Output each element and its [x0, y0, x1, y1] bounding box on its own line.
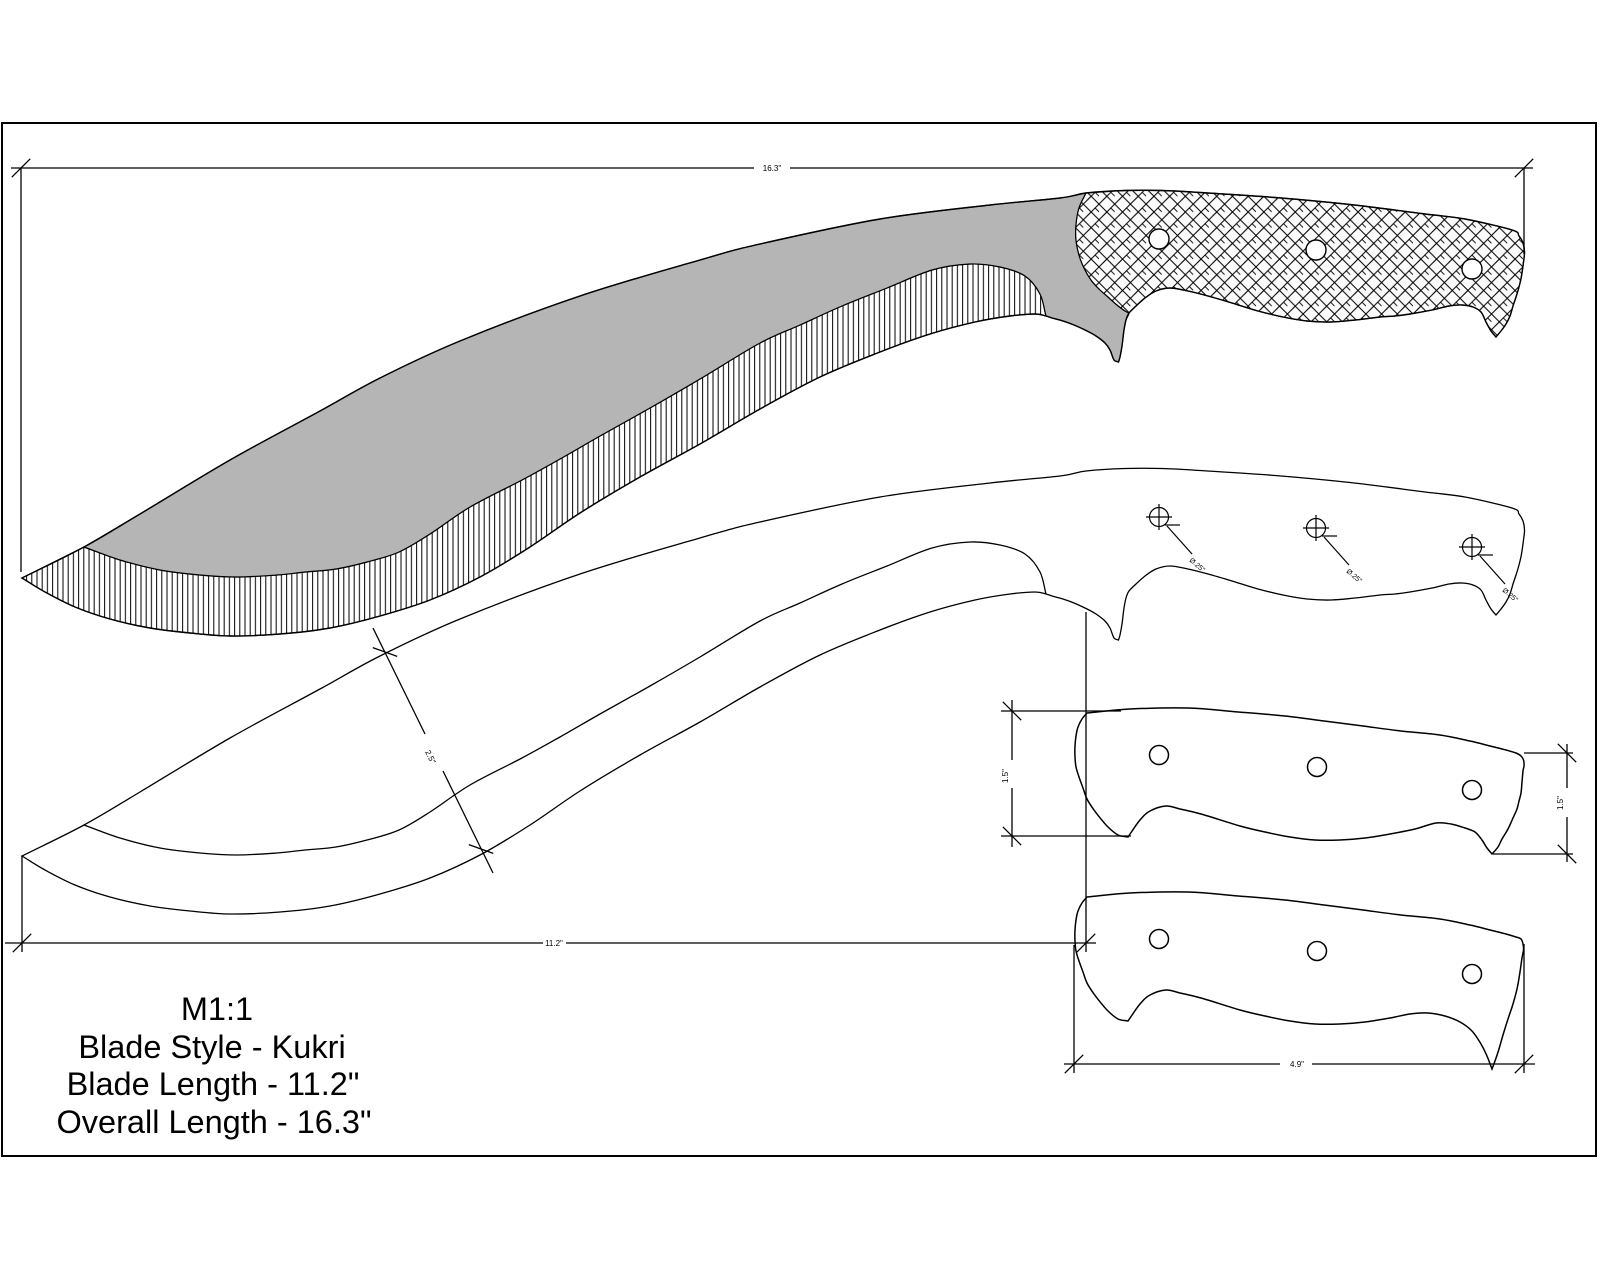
- svg-text:Overall Length - 16.3": Overall Length - 16.3": [56, 1104, 371, 1140]
- svg-text:M1:1: M1:1: [181, 991, 253, 1027]
- svg-text:Blade Style - Kukri: Blade Style - Kukri: [78, 1029, 345, 1065]
- svg-text:11.2": 11.2": [545, 939, 563, 948]
- svg-text:4.9": 4.9": [1290, 1060, 1304, 1069]
- svg-text:Blade Length - 11.2": Blade Length - 11.2": [67, 1066, 360, 1102]
- svg-text:1.5": 1.5": [1001, 769, 1010, 783]
- svg-text:1.5": 1.5": [1556, 796, 1565, 810]
- svg-text:16.3": 16.3": [763, 164, 782, 173]
